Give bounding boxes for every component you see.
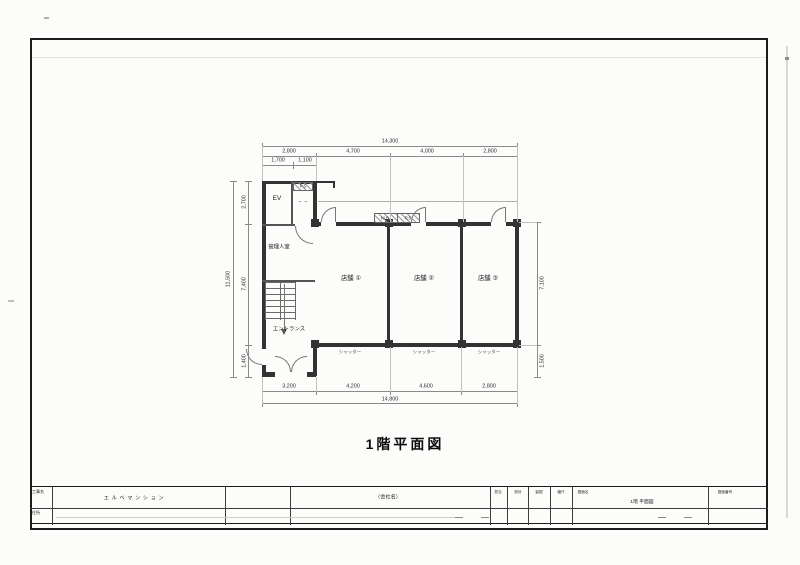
- dim-bottom-total: 14,800: [382, 396, 399, 401]
- scan-artifact-line: [32, 57, 766, 58]
- extension-line: [262, 377, 263, 404]
- label-pipe-space-wall: P.S: [405, 216, 412, 221]
- extension-line: [262, 146, 263, 181]
- dim-top-4: 2,800: [483, 148, 497, 153]
- extension-line: [390, 347, 391, 392]
- dim-top-3: 4,000: [420, 148, 434, 153]
- room-label-store-2: 店舗 ②: [414, 275, 434, 281]
- title-block-column-divider: [225, 487, 226, 525]
- extension-line: [519, 345, 537, 346]
- dim-bottom-1: 3,200: [282, 383, 296, 388]
- drawing-name-label: 図面名: [578, 490, 589, 494]
- title-block-column-divider: [550, 487, 551, 525]
- extension-line: [519, 222, 537, 223]
- door-opening: [275, 372, 307, 377]
- dimension-tick: [245, 345, 252, 346]
- label-shutter-1: シャッター: [339, 350, 362, 355]
- scan-speck: [8, 300, 14, 302]
- dim-top-total: 14,300: [382, 138, 399, 143]
- dim-bottom-3: 4,600: [419, 383, 433, 388]
- dimension-line: [233, 181, 234, 377]
- address-label: 住所: [32, 511, 40, 515]
- dim-top-sub-2: 1,100: [298, 157, 312, 162]
- stair-direction-line: [284, 284, 285, 330]
- dimension-line: [262, 146, 518, 147]
- title-block-column-divider: [708, 487, 709, 525]
- column: [458, 340, 466, 348]
- dim-left-3: 1,400: [241, 354, 246, 368]
- canopy-line: [318, 201, 517, 202]
- wall-left: [262, 181, 266, 377]
- dimension-line: [262, 165, 317, 166]
- dim-bottom-2: 4,200: [346, 383, 360, 388]
- column: [385, 340, 393, 348]
- room-label-entrance: エントランス: [273, 326, 305, 331]
- wall-right: [515, 222, 519, 347]
- extension-line: [463, 156, 464, 222]
- wall-hall-floor: [262, 224, 295, 226]
- dimension-tick: [230, 377, 237, 378]
- door-opening: [491, 222, 506, 226]
- title-block: 工事名 住所 エルベマンション （会社名） 担当 設計 製図 縮尺 図面名 1階…: [30, 486, 768, 524]
- dimension-tick: [534, 377, 541, 378]
- dim-left-total: 11,500: [225, 271, 230, 287]
- column: [311, 340, 319, 348]
- dim-right-2: 1,500: [539, 354, 544, 368]
- dim-top-sub-1: 1,700: [271, 157, 285, 162]
- staff-cell-label-2: 設計: [514, 490, 521, 494]
- illegible-text-mark: [481, 517, 489, 518]
- title-block-column-divider: [490, 487, 491, 525]
- extension-line: [517, 347, 518, 404]
- dimension-tick: [245, 377, 252, 378]
- dimension-tick: [293, 162, 294, 169]
- illegible-text-mark: [684, 517, 692, 518]
- illegible-address-line: [56, 517, 456, 518]
- project-name-label: 工事名: [32, 490, 44, 494]
- illegible-text-mark: [455, 517, 463, 518]
- wall-store-bottom: [313, 343, 519, 347]
- door-opening: [321, 222, 336, 226]
- dim-top-1: 2,800: [282, 148, 296, 153]
- dimension-tick: [245, 224, 252, 225]
- scanned-drawing-sheet: EV P.S 管理人室 エントランス 店舗 ① 店舗 ② 店舗 ③ M.B P.…: [0, 0, 800, 565]
- extension-line: [316, 377, 317, 392]
- dim-right-1: 7,100: [539, 276, 544, 290]
- extension-line: [316, 156, 317, 181]
- extension-line: [390, 156, 391, 222]
- scan-speck: [44, 17, 49, 19]
- scan-edge-band: [786, 46, 788, 518]
- staff-cell-label-4: 縮尺: [557, 490, 564, 494]
- label-meter-box: M.B: [381, 216, 389, 221]
- project-name-value: エルベマンション: [104, 495, 166, 500]
- company-name: （会社名）: [375, 494, 401, 499]
- drawing-frame-border: [30, 38, 768, 530]
- extension-line: [461, 347, 462, 392]
- dimension-line: [262, 403, 518, 404]
- meter-box-divider: [397, 213, 398, 223]
- door-leaf: [335, 207, 336, 222]
- hall-direction-arrow-icon: ←→: [298, 198, 309, 203]
- door-opening: [262, 349, 266, 365]
- label-shutter-3: シャッター: [478, 350, 501, 355]
- staff-cell-label-3: 製図: [535, 490, 542, 494]
- title-block-column-divider: [52, 487, 53, 525]
- dim-bottom-4: 2,800: [482, 383, 496, 388]
- drawing-title: 1階平面図: [366, 434, 445, 454]
- illegible-text-mark: [658, 517, 666, 518]
- wall-stub: [333, 181, 335, 188]
- title-block-column-divider: [528, 487, 529, 525]
- room-label-elevator: EV: [273, 195, 281, 201]
- door-leaf: [505, 207, 506, 222]
- title-block-column-divider: [290, 487, 291, 525]
- room-label-manager: 管理人室: [268, 244, 290, 249]
- label-shutter-2: シャッター: [413, 350, 436, 355]
- dimension-tick: [230, 181, 237, 182]
- dim-top-2: 4,700: [346, 148, 360, 153]
- drawing-name-value: 1階 平面図: [630, 500, 653, 505]
- staff-cell-label-1: 担当: [494, 490, 501, 494]
- title-block-column-divider: [507, 487, 508, 525]
- staircase-rail: [280, 282, 281, 320]
- room-label-store-1: 店舗 ①: [341, 275, 361, 281]
- title-block-column-divider: [572, 487, 573, 525]
- dimension-tick: [245, 181, 252, 182]
- title-block-row-divider: [30, 508, 768, 509]
- dim-left-1: 2,700: [241, 195, 246, 209]
- room-label-pipe-space: P.S: [300, 184, 307, 189]
- wall-partition-1: [387, 226, 390, 343]
- dim-left-2: 7,400: [241, 277, 246, 291]
- drawing-number-label: 図面番号: [718, 490, 732, 494]
- dimension-line: [248, 181, 249, 377]
- room-label-store-3: 店舗 ③: [478, 275, 498, 281]
- scan-speck: [785, 57, 789, 60]
- door-leaf: [425, 207, 426, 222]
- column: [458, 219, 466, 227]
- extension-line: [517, 146, 518, 222]
- wall-partition-2: [460, 226, 463, 343]
